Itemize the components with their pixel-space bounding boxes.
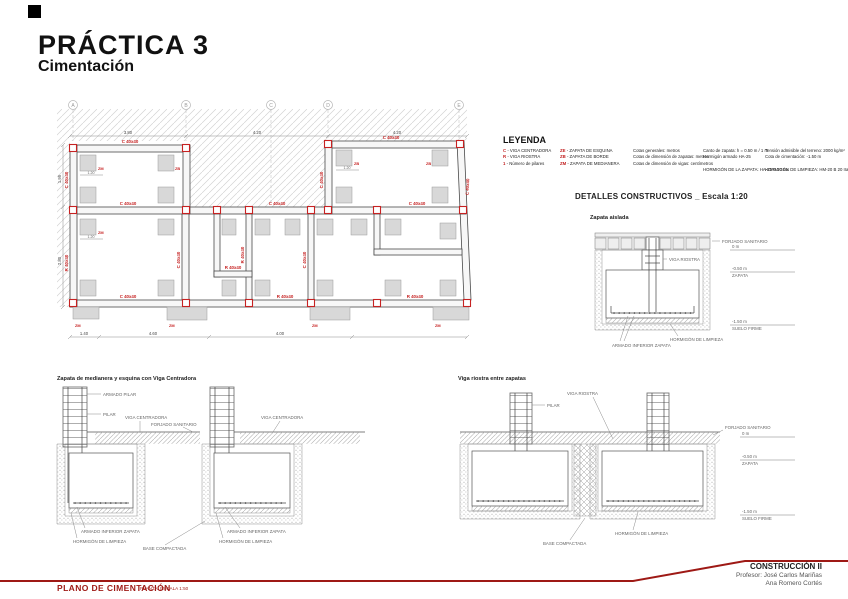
level-label: SUELO FIRME — [742, 516, 772, 521]
dim-small: 1.20 — [344, 166, 351, 170]
legend-item: ZM - ZAPATA DE MEDIANERA — [560, 161, 619, 167]
annotation-label: PILAR — [547, 403, 560, 408]
annotation-label: BASE COMPACTADA — [543, 541, 586, 546]
beam-label: C 40x40 — [120, 201, 137, 206]
compacted-base — [574, 444, 596, 516]
legend-key: ZB — [560, 154, 566, 159]
footing-tag: ZM — [98, 230, 104, 235]
dim-bottom: 4.00 — [276, 331, 285, 336]
slab-hatch — [240, 432, 360, 444]
detail-title-isolated: Zapata aislada — [590, 215, 629, 221]
legend-col2: ZE - ZAPATA DE ESQUINA ZB - ZAPATA DE BO… — [560, 148, 619, 167]
annotation-label: HORMIGÓN DE LIMPIEZA — [73, 539, 126, 544]
beam-label: C 40x40 — [120, 294, 137, 299]
footing-tag: ZM — [169, 323, 175, 328]
dim-bottom: 4.60 — [149, 331, 158, 336]
legend-key: C — [503, 148, 506, 153]
beam-label: C 40x40 — [302, 251, 307, 268]
detail-title-right: Viga riostra entre zapatas — [458, 376, 526, 382]
legend-note: Cotas de dimensión de zapatas: metros — [633, 154, 713, 160]
legend-key: R — [503, 154, 506, 159]
footing-body — [69, 453, 133, 508]
level-label: -0.50 m — [742, 454, 757, 459]
dim-top: 3.80 — [124, 130, 133, 135]
level-label: ZAPATA — [732, 273, 748, 278]
level-label: SUELO FIRME — [732, 326, 762, 331]
legend-text: - VIGA RIOSTRA — [507, 154, 540, 159]
footer-student: Ana Romero Cortés — [736, 580, 822, 588]
footing-body — [214, 453, 290, 508]
detail-title-left: Zapata de medianera y esquina con Viga C… — [57, 376, 196, 382]
level-label: -0.50 m — [732, 266, 747, 271]
section-a: ARMADO PILAR PILAR VIGA CENTRADORA FORJA… — [57, 387, 200, 544]
page-title: PRÁCTICA 3 — [38, 30, 209, 61]
page-subtitle: Cimentación — [38, 58, 134, 76]
beam-label: C 40x40 — [64, 171, 69, 188]
beam-label: R 40x40 — [64, 254, 69, 271]
legend-col1: C - VIGA CENTRADORA R - VIGA RIOSTRA 1 -… — [503, 148, 551, 167]
annotation-label: FORJADO SANITARIO — [725, 425, 771, 430]
foundation-plan: A B C D E 3.80 4.20 4.20 1.95 2.80 1.40 … — [55, 95, 480, 353]
footing-body — [606, 270, 699, 318]
dim-small: 1.20 — [88, 235, 95, 239]
legend-note: Cotas de dimensión de vigas: centímetros — [633, 161, 713, 167]
annotation-label: ARMADO PILAR — [103, 392, 136, 397]
section-b: VIGA CENTRADORA ARMADO INFERIOR ZAPATA H… — [143, 387, 365, 551]
legend-text: - ZAPATA DE MEDIANERA — [567, 161, 619, 166]
annotation-label: HORMIGÓN DE LIMPIEZA — [615, 531, 668, 536]
legend-col3: Cotas generales: metros Cotas de dimensi… — [633, 148, 713, 167]
footing-body-right — [602, 451, 703, 506]
legend-text: - Número de pilares — [507, 161, 545, 166]
footer-rule — [0, 555, 848, 585]
annotation-label: FORJADO SANITARIO — [722, 239, 768, 244]
legend-text: - ZAPATA DE BORDE — [567, 154, 609, 159]
grid-letter: D — [326, 103, 330, 109]
annotation-label: HORMIGÓN DE LIMPIEZA — [219, 539, 272, 544]
dim-left: 2.80 — [57, 256, 62, 265]
annotation-label: BASE COMPACTADA — [143, 546, 186, 551]
level-label: -1.50 m — [742, 509, 757, 514]
grid-letter: C — [269, 103, 273, 109]
grid-letter: E — [457, 103, 461, 109]
annotation-label: FORJADO SANITARIO — [151, 422, 197, 427]
level-marks: 0 m -0.50 m ZAPATA -1.50 m SUELO FIRME — [730, 244, 795, 331]
beam-label: C 40x40 — [465, 178, 471, 195]
beam-label: R 40x40 — [407, 294, 424, 299]
beam-label: R 40x40 — [277, 294, 294, 299]
corner-mark — [28, 5, 41, 18]
beam-label: C 40x40 — [269, 201, 286, 206]
dim-bottom: 1.40 — [80, 331, 89, 336]
beam-label: C 40x40 — [383, 135, 400, 140]
annotation-label: HORMIGÓN DE LIMPIEZA — [670, 337, 723, 342]
annotation-label: VIGA CENTRADORA — [261, 415, 303, 420]
beam-label: R 40x40 — [225, 265, 242, 270]
slab-hatch — [95, 432, 200, 444]
legend-key: 1 — [503, 161, 505, 166]
legend-heading: LEYENDA — [503, 135, 546, 145]
annotation-label: VIGA CENTRADORA — [125, 415, 167, 420]
footing-tag: ZM — [435, 323, 441, 328]
annotation-label: ARMADO INFERIOR ZAPATA — [612, 343, 671, 348]
detail-party-wall-footings: ARMADO PILAR PILAR VIGA CENTRADORA FORJA… — [55, 385, 450, 555]
footing-tag: ZB — [175, 166, 180, 171]
tie-beam — [642, 250, 663, 270]
legend-text: - VIGA CENTRADORA — [507, 148, 551, 153]
footing-body-left — [472, 451, 568, 506]
grid-letter: B — [184, 103, 188, 109]
footing-tag: ZM — [312, 323, 318, 328]
slab-hatch — [460, 432, 720, 444]
annotation-label: ARMADO INFERIOR ZAPATA — [81, 529, 140, 534]
legend-key: ZM — [560, 161, 566, 166]
dim-left: 1.95 — [57, 174, 62, 183]
legend-note: Cota de cimentación: -1.50 m — [765, 154, 848, 160]
beam-label: R 40x40 — [240, 246, 245, 263]
footer-course: CONSTRUCCIÓN II — [750, 562, 822, 571]
details-heading: DETALLES CONSTRUCTIVOS _ Escala 1:20 — [575, 192, 748, 201]
beam-label: C 40x40 — [409, 201, 426, 206]
blinding-layer — [606, 318, 699, 323]
annotation-label: VIGA RIOSTRA — [669, 257, 700, 262]
blinding-layer-left — [472, 506, 568, 511]
legend-key: ZE — [560, 148, 566, 153]
footing-tag: ZB — [426, 161, 431, 166]
beam-label: C 40x40 — [176, 251, 181, 268]
drawing-sheet: PRÁCTICA 3 Cimentación A B C D E — [0, 0, 848, 599]
dim-top: 4.20 — [253, 130, 262, 135]
footer-professor: Profesor: José Carlos Mariñas — [736, 572, 822, 580]
grid-letter: A — [71, 103, 75, 109]
footer-credits: Profesor: José Carlos Mariñas Ana Romero… — [736, 572, 822, 587]
annotation-label: VIGA RIOSTRA — [567, 391, 598, 396]
annotation-label: ARMADO INFERIOR ZAPATA — [227, 529, 286, 534]
legend-note: HORMIGÓN DE LIMPIEZA: HM-20 B 20 IIa — [765, 167, 848, 173]
footing-tag: ZB — [354, 161, 359, 166]
level-label: 0 m — [742, 431, 750, 436]
legend-item: 1 - Número de pilares — [503, 161, 551, 167]
detail-isolated-footing: 0 m -0.50 m ZAPATA -1.50 m SUELO FIRME F… — [590, 228, 805, 358]
beam-label: C 40x40 — [122, 139, 139, 144]
footing-tag: ZM — [98, 166, 104, 171]
sanitary-slab — [595, 233, 710, 250]
footing-tag: ZM — [75, 323, 81, 328]
level-marks: 0 m -0.50 m ZAPATA -1.50 m SUELO FIRME — [740, 431, 795, 521]
level-label: ZAPATA — [742, 461, 758, 466]
footer-scale: PLANTA: ESCALA 1:50 — [140, 586, 188, 591]
beam-label: C 40x40 — [319, 171, 324, 188]
blinding-layer — [214, 508, 290, 513]
dim-small: 1.20 — [88, 171, 95, 175]
annotation-label: PILAR — [103, 412, 116, 417]
detail-tie-beam-footings: PILAR VIGA RIOSTRA FORJADO SANITARIO BAS… — [455, 385, 805, 555]
level-label: -1.50 m — [732, 319, 747, 324]
level-label: 0 m — [732, 244, 740, 249]
legend-text: - ZAPATA DE ESQUINA — [567, 148, 613, 153]
blinding-layer-right — [602, 506, 703, 511]
legend-col5: Tensión admisible del terreno: 2000 kg/m… — [765, 148, 848, 173]
